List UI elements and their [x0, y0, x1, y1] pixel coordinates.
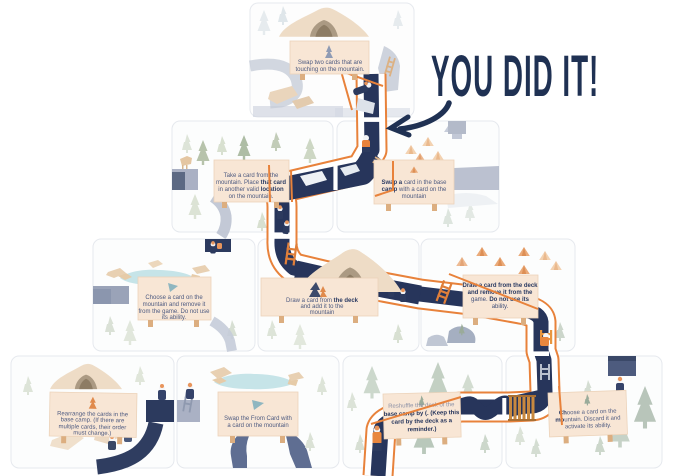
svg-text:Swap the From Card with: Swap the From Card with: [224, 416, 292, 422]
svg-text:a card on the mountain: a card on the mountain: [227, 423, 288, 429]
svg-text:touching on the mountain.: touching on the mountain.: [295, 67, 364, 73]
svg-text:must change.): must change.): [73, 430, 111, 437]
svg-text:mountain. Place that card: mountain. Place that card: [216, 180, 286, 186]
svg-text:in another valid location: in another valid location: [218, 187, 284, 193]
svg-text:Swap two cards that are: Swap two cards that are: [298, 60, 363, 66]
svg-text:YOU DID IT!: YOU DID IT!: [431, 44, 599, 109]
svg-text:mountain: mountain: [310, 310, 335, 316]
svg-text:ability.: ability.: [492, 304, 509, 310]
svg-text:mountain and remove it: mountain and remove it: [143, 302, 206, 308]
svg-text:reminder.): reminder.): [407, 427, 436, 434]
svg-text:base camp. (If there are: base camp. (If there are: [61, 417, 125, 424]
svg-text:mountain: mountain: [402, 194, 427, 200]
svg-text:its ability.: its ability.: [162, 315, 187, 321]
svg-text:Take a card from the: Take a card from the: [224, 173, 279, 179]
svg-text:on the mountain.: on the mountain.: [229, 194, 274, 200]
svg-text:Choose a card on the: Choose a card on the: [145, 295, 203, 301]
svg-text:Swap a card in the base: Swap a card in the base: [381, 180, 447, 186]
